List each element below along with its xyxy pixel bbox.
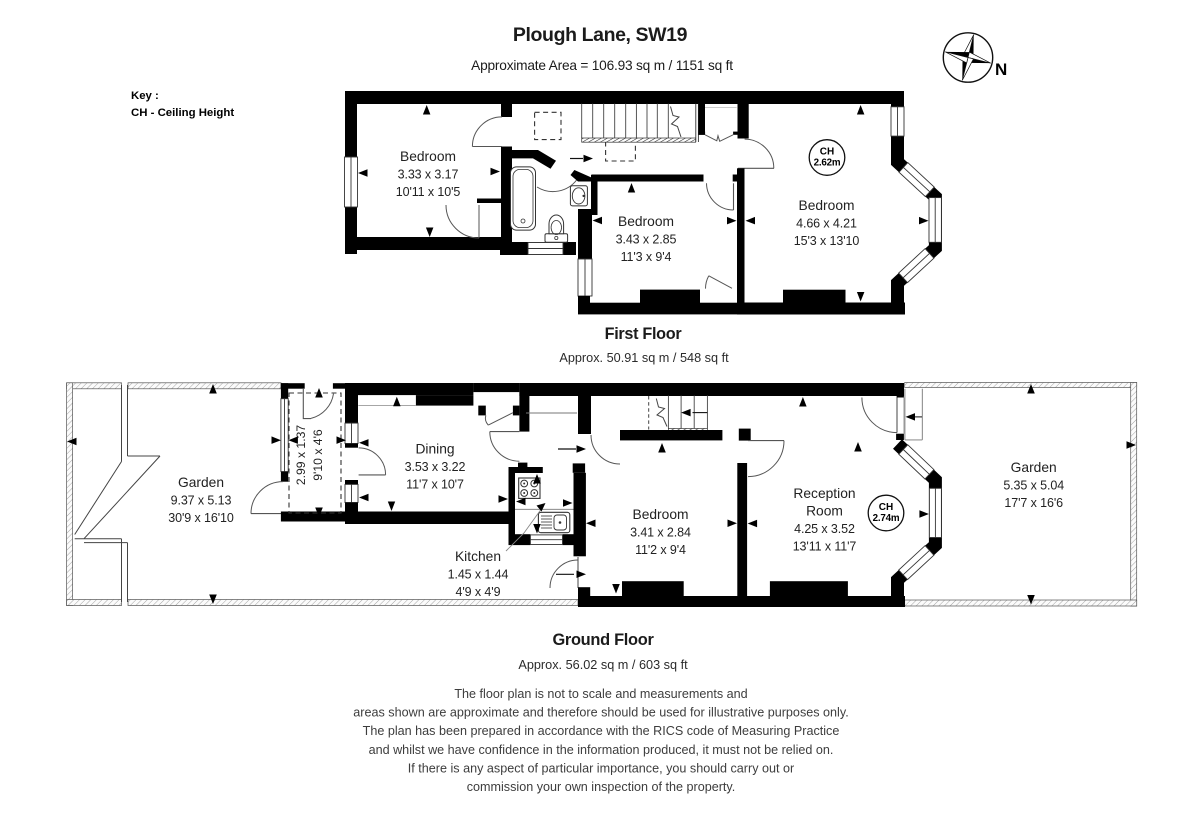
svg-text:areas shown are approximate an: areas shown are approximate and therefor…	[353, 706, 848, 720]
svg-text:Bedroom: Bedroom	[618, 214, 674, 229]
svg-text:Dining: Dining	[415, 442, 454, 457]
svg-text:9'10 x 4'6: 9'10 x 4'6	[311, 429, 325, 481]
svg-text:2.99 x 1.37: 2.99 x 1.37	[294, 425, 308, 486]
svg-text:Kitchen: Kitchen	[455, 549, 501, 564]
svg-text:30'9 x 16'10: 30'9 x 16'10	[168, 511, 234, 525]
svg-text:Bedroom: Bedroom	[633, 507, 689, 522]
svg-text:3.33 x 3.17: 3.33 x 3.17	[398, 168, 459, 182]
svg-text:Bedroom: Bedroom	[799, 198, 855, 213]
svg-text:Garden: Garden	[178, 475, 224, 490]
svg-text:2.62m: 2.62m	[814, 158, 841, 169]
svg-text:11'3 x 9'4: 11'3 x 9'4	[621, 250, 672, 264]
svg-text:Bedroom: Bedroom	[400, 149, 456, 164]
svg-text:9.37 x 5.13: 9.37 x 5.13	[171, 494, 232, 508]
svg-text:Approx. 50.91 sq m / 548 sq ft: Approx. 50.91 sq m / 548 sq ft	[559, 351, 729, 365]
svg-text:4.25 x 3.52: 4.25 x 3.52	[794, 522, 855, 536]
svg-text:Approximate Area = 106.93 sq: Approximate Area = 106.93 sq m / 1151 sq…	[471, 58, 733, 73]
svg-text:2.74m: 2.74m	[873, 513, 900, 524]
svg-text:Room: Room	[806, 504, 843, 519]
svg-text:N: N	[995, 60, 1007, 79]
svg-text:1.45 x 1.44: 1.45 x 1.44	[448, 568, 509, 582]
svg-text:CH: CH	[820, 147, 834, 158]
svg-text:Key :: Key :	[131, 90, 159, 102]
svg-text:5.35 x 5.04: 5.35 x 5.04	[1003, 479, 1064, 493]
svg-text:Approx. 56.02 sq m / 603 sq ft: Approx. 56.02 sq m / 603 sq ft	[518, 658, 688, 672]
svg-text:10'11 x 10'5: 10'11 x 10'5	[396, 185, 461, 199]
svg-text:3.53 x 3.22: 3.53 x 3.22	[405, 460, 466, 474]
svg-text:and whilst we have confidence: and whilst we have confidence in the inf…	[369, 743, 834, 757]
svg-text:If there is any aspect of part: If there is any aspect of particular imp…	[408, 761, 794, 775]
svg-text:4'9 x 4'9: 4'9 x 4'9	[456, 585, 501, 599]
svg-text:4.66 x 4.21: 4.66 x 4.21	[796, 217, 857, 231]
svg-text:17'7 x 16'6: 17'7 x 16'6	[1004, 496, 1063, 510]
svg-text:CH - Ceiling Height: CH - Ceiling Height	[131, 107, 234, 119]
svg-text:Garden: Garden	[1011, 460, 1057, 475]
svg-text:11'2 x 9'4: 11'2 x 9'4	[635, 543, 686, 557]
svg-text:Reception: Reception	[793, 486, 855, 501]
svg-text:CH: CH	[879, 502, 893, 513]
svg-text:Plough Lane, SW19: Plough Lane, SW19	[513, 24, 688, 46]
svg-text:Ground Floor: Ground Floor	[552, 631, 654, 649]
svg-text:15'3 x 13'10: 15'3 x 13'10	[794, 234, 860, 248]
svg-text:13'11 x 11'7: 13'11 x 11'7	[793, 540, 857, 554]
svg-text:The floor plan is not to scale: The floor plan is not to scale and measu…	[454, 687, 747, 701]
svg-text:commission your own inspection: commission your own inspection of the pr…	[467, 780, 736, 794]
svg-text:First Floor: First Floor	[605, 325, 683, 343]
svg-text:11'7 x 10'7: 11'7 x 10'7	[406, 478, 464, 492]
svg-text:3.41 x 2.84: 3.41 x 2.84	[630, 526, 691, 540]
svg-text:3.43 x 2.85: 3.43 x 2.85	[616, 233, 677, 247]
svg-text:The plan has been prepared in: The plan has been prepared in accordance…	[363, 724, 840, 738]
